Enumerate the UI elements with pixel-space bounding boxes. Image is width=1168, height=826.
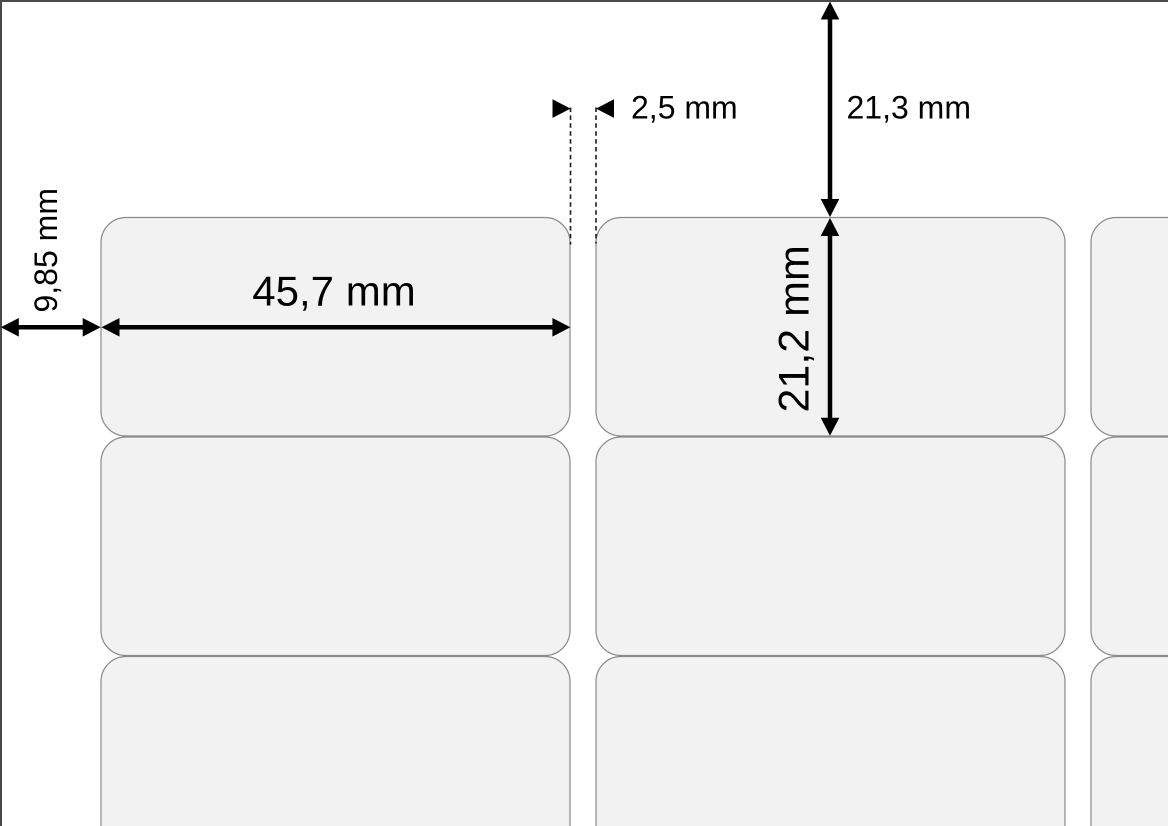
svg-text:2,5 mm: 2,5 mm (631, 90, 738, 126)
svg-text:21,2 mm: 21,2 mm (771, 245, 819, 412)
svg-text:9,85 mm: 9,85 mm (28, 188, 64, 312)
svg-text:21,3 mm: 21,3 mm (847, 90, 971, 126)
svg-text:45,7 mm: 45,7 mm (252, 268, 415, 315)
